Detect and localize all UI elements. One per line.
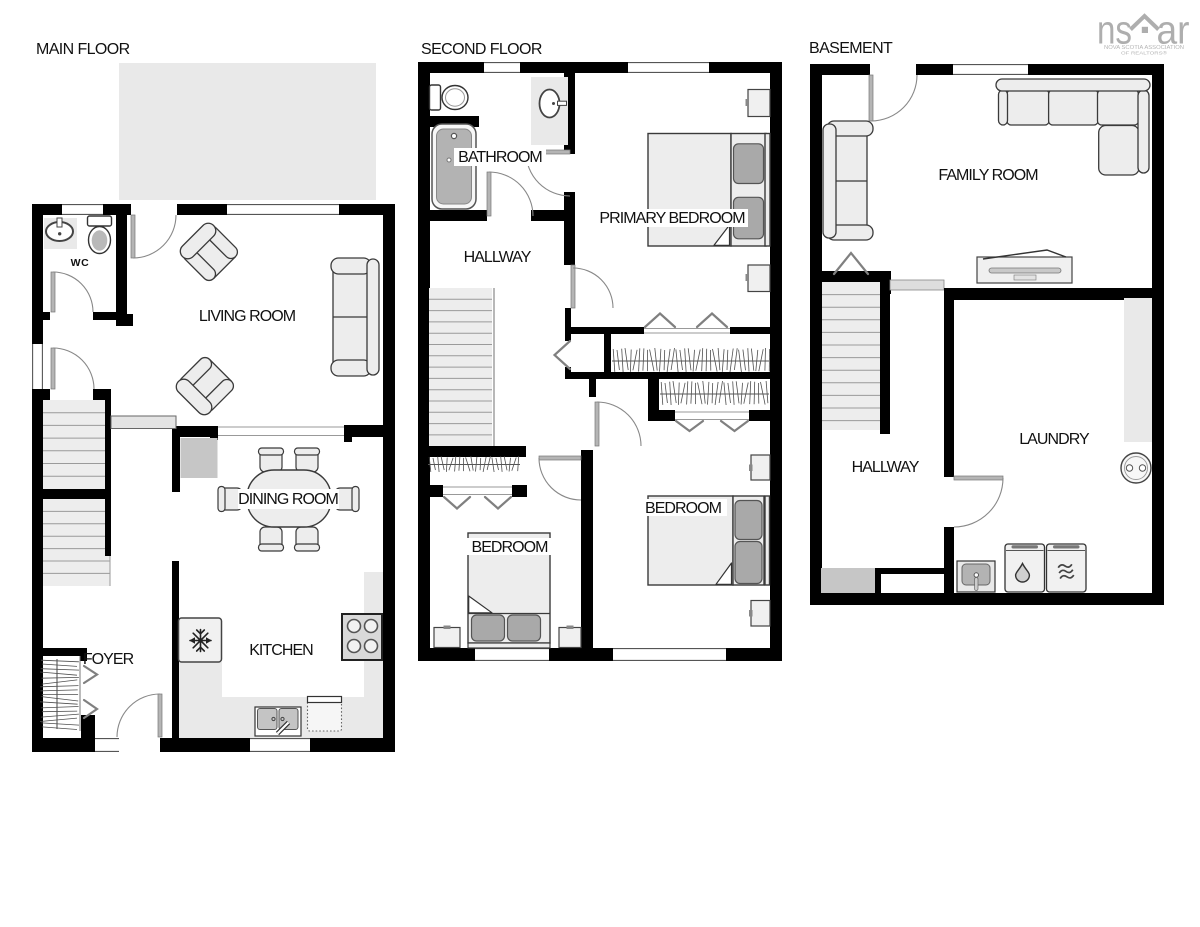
- svg-text:WC: WC: [71, 257, 90, 269]
- svg-text:FAMILY ROOM: FAMILY ROOM: [938, 167, 1038, 184]
- svg-text:HALLWAY: HALLWAY: [852, 459, 920, 476]
- svg-text:FOYER: FOYER: [83, 651, 134, 668]
- svg-text:BASEMENT: BASEMENT: [809, 40, 893, 57]
- svg-text:HALLWAY: HALLWAY: [464, 249, 532, 266]
- svg-text:LIVING ROOM: LIVING ROOM: [199, 308, 296, 325]
- svg-text:PRIMARY BEDROOM: PRIMARY BEDROOM: [599, 210, 745, 227]
- svg-text:BATHROOM: BATHROOM: [458, 149, 542, 166]
- svg-text:BEDROOM: BEDROOM: [471, 539, 548, 556]
- svg-text:DINING ROOM: DINING ROOM: [238, 491, 338, 508]
- svg-text:LAUNDRY: LAUNDRY: [1019, 431, 1090, 448]
- svg-text:OF REALTORS®: OF REALTORS®: [1121, 50, 1168, 56]
- svg-text:KITCHEN: KITCHEN: [249, 642, 313, 659]
- svg-text:MAIN FLOOR: MAIN FLOOR: [36, 41, 130, 58]
- svg-text:BEDROOM: BEDROOM: [645, 500, 722, 517]
- svg-text:SECOND FLOOR: SECOND FLOOR: [421, 41, 542, 58]
